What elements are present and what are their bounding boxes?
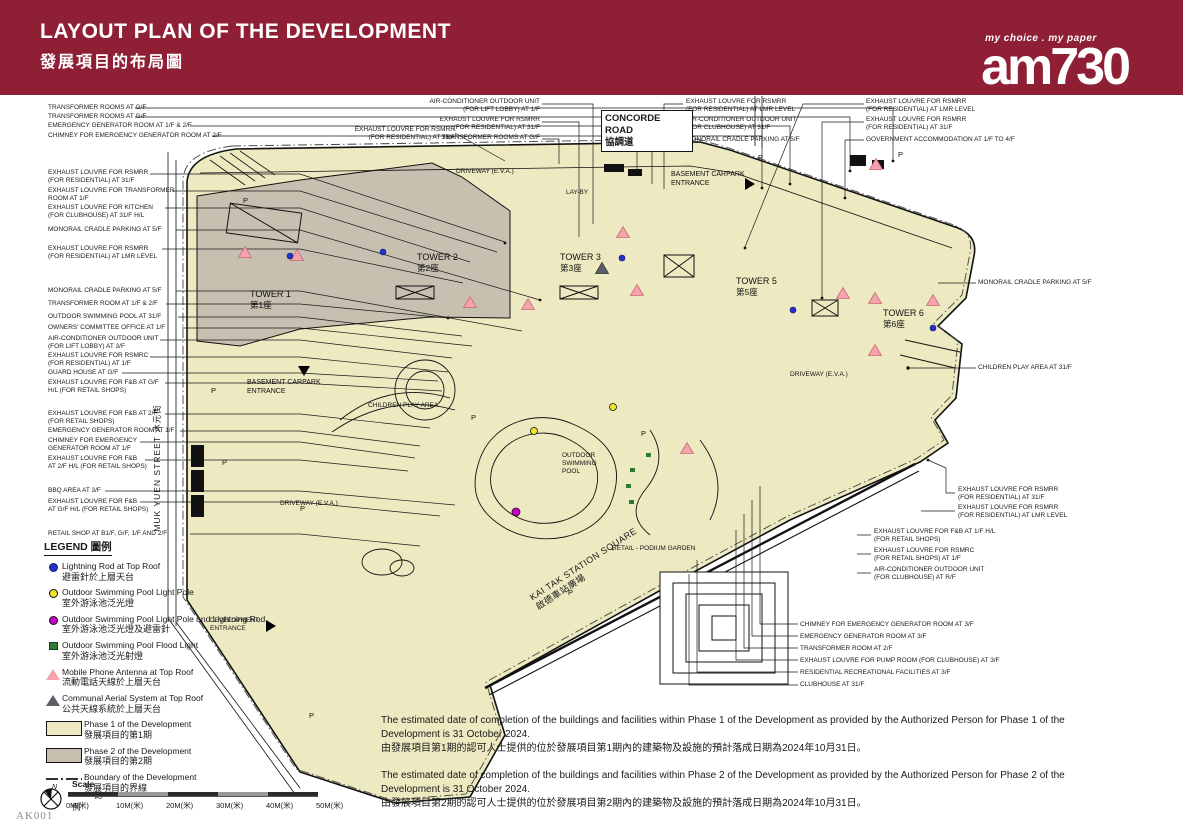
legend-title: LEGEND 圖例 (44, 539, 112, 556)
callout-left-4: EXHAUST LOUVRE FOR RSMRR (FOR RESIDENTIA… (48, 169, 148, 186)
svg-text:P: P (898, 150, 903, 159)
callout-left-7: MONORAIL CRADLE PARKING AT 5/F (48, 226, 162, 234)
concorde-road-en: CONCORDE ROAD (605, 113, 689, 137)
pool-light-and-rod-icon (44, 616, 62, 625)
callout-right-2: EXHAUST LOUVRE FOR RSMRR (FOR RESIDENTIA… (958, 486, 1058, 503)
callout-left-16: EXHAUST LOUVRE FOR F&B AT G/F H/L (FOR R… (48, 379, 159, 396)
callout-top-0: AIR-CONDITIONER OUTDOOR UNIT (FOR LIFT L… (390, 98, 540, 115)
tower-3-label: TOWER 3第3座 (560, 252, 601, 274)
tower-1-label: TOWER 1第1座 (250, 289, 291, 311)
layout-plan-page: PP PP PP PP PP LAYOUT PLAN OF THE DEVELO… (0, 0, 1183, 833)
outdoor-pool-label: OUTDOOR SWIMMING POOL (562, 452, 597, 476)
flood-light-icon (44, 642, 62, 650)
svg-text:P: P (222, 458, 227, 467)
callout-left-10: TRANSFORMER ROOM AT 1/F & 2/F (48, 300, 158, 308)
callout-left-12: OWNERS' COMMITTEE OFFICE AT 1/F (48, 324, 165, 332)
callout-bottomright-2: TRANSFORMER ROOM AT 2/F (800, 645, 893, 653)
callout-left-17: EXHAUST LOUVRE FOR F&B AT 2/F (FOR RETAI… (48, 410, 157, 427)
am730-logo: my choice . my paper am730 (981, 33, 1128, 91)
lightning-rod-icon (44, 563, 62, 572)
svg-text:P: P (471, 413, 476, 422)
basement-carpark-label-top: BASEMENT CARPARK ENTRANCE (671, 171, 745, 189)
phase2-note-en: The estimated date of completion of the … (381, 769, 1087, 797)
document-code: AK001 (16, 810, 53, 822)
callout-right-5: EXHAUST LOUVRE FOR RSMRC (FOR RETAIL SHO… (874, 547, 974, 564)
callout-bottomright-1: EMERGENCY GENERATOR ROOM AT 3/F (800, 633, 927, 641)
children-play-area-label: CHILDREN PLAY AREA (368, 402, 438, 410)
callout-left-22: EXHAUST LOUVRE FOR F&B AT G/F H/L (FOR R… (48, 498, 148, 515)
legend-item-communal-aerial: Communal Aerial System at Top Roof公共天線系統… (44, 693, 364, 715)
callout-topmid-2: MONORAIL CRADLE PARKING AT 5/F (686, 136, 800, 144)
svg-text:P: P (758, 153, 763, 162)
callout-left-20: EXHAUST LOUVRE FOR F&B AT 2/F H/L (FOR R… (48, 455, 147, 472)
callout-bottomright-5: CLUBHOUSE AT 31/F (800, 681, 864, 689)
am730-brand: am730 (981, 44, 1128, 91)
pool-light-pole-icon (44, 589, 62, 598)
tower-2-label: TOWER 2第2座 (417, 252, 458, 274)
callout-left-13: AIR-CONDITIONER OUTDOOR UNIT (FOR LIFT L… (48, 335, 159, 352)
callout-right-4: EXHAUST LOUVRE FOR F&B AT 1/F H/L (FOR R… (874, 528, 995, 545)
callout-left-6: EXHAUST LOUVRE FOR KITCHEN (FOR CLUBHOUS… (48, 204, 153, 221)
callout-left-9: MONORAIL CRADLE PARKING AT 5/F (48, 287, 162, 295)
scale-tick-4: 40M(米) (266, 800, 293, 811)
legend-item-flood-light: Outdoor Swimming Pool Flood Light室外游泳池泛光… (44, 640, 364, 662)
basement-carpark-label-mid: BASEMENT CARPARK ENTRANCE (247, 379, 321, 397)
callout-left-5: EXHAUST LOUVRE FOR TRANSFORMER ROOM AT 1… (48, 187, 175, 204)
scale-tick-1: 10M(米) (116, 800, 143, 811)
callout-topright-2: GOVERNMENT ACCOMMODATION AT 1/F TO 4/F (866, 136, 1015, 144)
scale-tick-0: 0M(米) (66, 800, 89, 811)
phase1-completion-note: The estimated date of completion of the … (381, 714, 1087, 755)
mobile-antenna-icon (44, 669, 62, 680)
driveway-label-2: DRIVEWAY (E.V.A.) (790, 371, 848, 379)
legend-item-mobile-antenna: Mobile Phone Antenna at Top Roof流動電話天線於上… (44, 667, 364, 689)
legend-item-pool-light-pole: Outdoor Swimming Pool Light Pole室外游泳池泛光燈 (44, 587, 364, 609)
driveway-label-3: DRIVEWAY (E.V.A.) (280, 500, 338, 508)
legend: LEGEND 圖例 Lightning Rod at Top Roof避雷針於上… (44, 537, 364, 798)
tower-5-label: TOWER 5第5座 (736, 276, 777, 298)
callout-left-8: EXHAUST LOUVRE FOR RSMRR (FOR RESIDENTIA… (48, 245, 157, 262)
scale-label-en: Scale (72, 779, 94, 789)
callout-left-1: TRANSFORMER ROOMS AT G/F (48, 113, 146, 121)
callout-topright-1: EXHAUST LOUVRE FOR RSMRR (FOR RESIDENTIA… (866, 116, 966, 133)
callout-bottomright-3: EXHAUST LOUVRE FOR PUMP ROOM (FOR CLUBHO… (800, 657, 1000, 665)
callout-left-11: OUTDOOR SWIMMING POOL AT 31/F (48, 313, 161, 321)
callout-right-3: EXHAUST LOUVRE FOR RSMRR (FOR RESIDENTIA… (958, 504, 1067, 521)
stepped-structure (660, 572, 788, 684)
scale-tick-5: 50M(米) (316, 800, 343, 811)
muk-yuen-street-label: MUK YUEN STREET 沐元街 (152, 398, 178, 538)
driveway-label-1: DRIVEWAY (E.V.A.) (456, 168, 514, 176)
phase2-swatch (44, 748, 84, 763)
retail-podium-label: RETAIL - PODIUM GARDEN (612, 545, 695, 553)
svg-text:P: P (243, 196, 248, 205)
legend-item-phase1: Phase 1 of the Development發展項目的第1期 (44, 719, 364, 741)
phase2-note-zh: 由發展項目第2期的認可人士提供的位於發展項目第2期內的建築物及設施的預計落成日期… (381, 797, 1087, 811)
callout-left-15: GUARD HOUSE AT G/F (48, 369, 118, 377)
basement-carpark-arrow-top (745, 178, 755, 190)
phase1-note-zh: 由發展項目第1期的認可人士提供的位於發展項目第1期內的建築物及設施的預計落成日期… (381, 742, 1087, 756)
phase1-note-en: The estimated date of completion of the … (381, 714, 1087, 742)
legend-item-pool-light-and-rod: Outdoor Swimming Pool Light Pole and Lig… (44, 614, 364, 636)
concorde-road-label: CONCORDE ROAD 協調道 (601, 110, 693, 152)
callout-topmid-1: AIR-CONDITIONER OUTDOOR UNIT (FOR CLUBHO… (686, 116, 797, 133)
callout-left-21: BBQ AREA AT 3/F (48, 487, 101, 495)
basement-carpark-arrow-mid (298, 366, 310, 376)
north-compass-icon: N (36, 781, 66, 813)
callout-bottomright-0: CHIMNEY FOR EMERGENCY GENERATOR ROOM AT … (800, 621, 974, 629)
callout-left-0: TRANSFORMER ROOMS AT G/F (48, 104, 146, 112)
svg-text:P: P (641, 429, 646, 438)
callout-right-1: CHILDREN PLAY AREA AT 31/F (978, 364, 1072, 372)
callout-left-14: EXHAUST LOUVRE FOR RSMRC (FOR RESIDENTIA… (48, 352, 148, 369)
callout-right-0: MONORAIL CRADLE PARKING AT 5/F (978, 279, 1092, 287)
svg-text:P: P (211, 386, 216, 395)
callout-bottomright-4: RESIDENTIAL RECREATIONAL FACILITIES AT 3… (800, 669, 951, 677)
scale-tick-2: 20M(米) (166, 800, 193, 811)
page-title-zh: 發展項目的布局圖 (40, 48, 184, 72)
callout-left-2: EMERGENCY GENERATOR ROOM AT 1/F & 2/F (48, 122, 192, 130)
callout-top-3: EXHAUST LOUVRE FOR RSMRR (FOR RESIDENTIA… (305, 126, 455, 143)
scale-bar-segments (68, 792, 318, 797)
callout-topright-0: EXHAUST LOUVRE FOR RSMRR (FOR RESIDENTIA… (866, 98, 975, 115)
page-title-en: LAYOUT PLAN OF THE DEVELOPMENT (40, 20, 451, 44)
tower-6-label: TOWER 6第6座 (883, 308, 924, 330)
callout-right-6: AIR-CONDITIONER OUTDOOR UNIT (FOR CLUBHO… (874, 566, 985, 583)
communal-aerial-icon (44, 695, 62, 706)
callout-left-3: CHIMNEY FOR EMERGENCY GENERATOR ROOM AT … (48, 132, 222, 140)
svg-text:N: N (52, 784, 58, 791)
legend-item-lightning-rod: Lightning Rod at Top Roof避雷針於上層天台 (44, 561, 364, 583)
legend-item-phase2: Phase 2 of the Development發展項目的第2期 (44, 746, 364, 768)
page-header: LAYOUT PLAN OF THE DEVELOPMENT 發展項目的布局圖 … (0, 0, 1183, 95)
layby-label: LAY-BY (566, 189, 588, 197)
concorde-road-zh: 協調道 (605, 137, 689, 149)
phase2-completion-note: The estimated date of completion of the … (381, 769, 1087, 810)
scale-tick-3: 30M(米) (216, 800, 243, 811)
callout-left-19: CHIMNEY FOR EMERGENCY GENERATOR ROOM AT … (48, 437, 137, 454)
callout-topmid-0: EXHAUST LOUVRE FOR RSMRR (FOR RESIDENTIA… (686, 98, 795, 115)
phase1-swatch (44, 721, 84, 736)
